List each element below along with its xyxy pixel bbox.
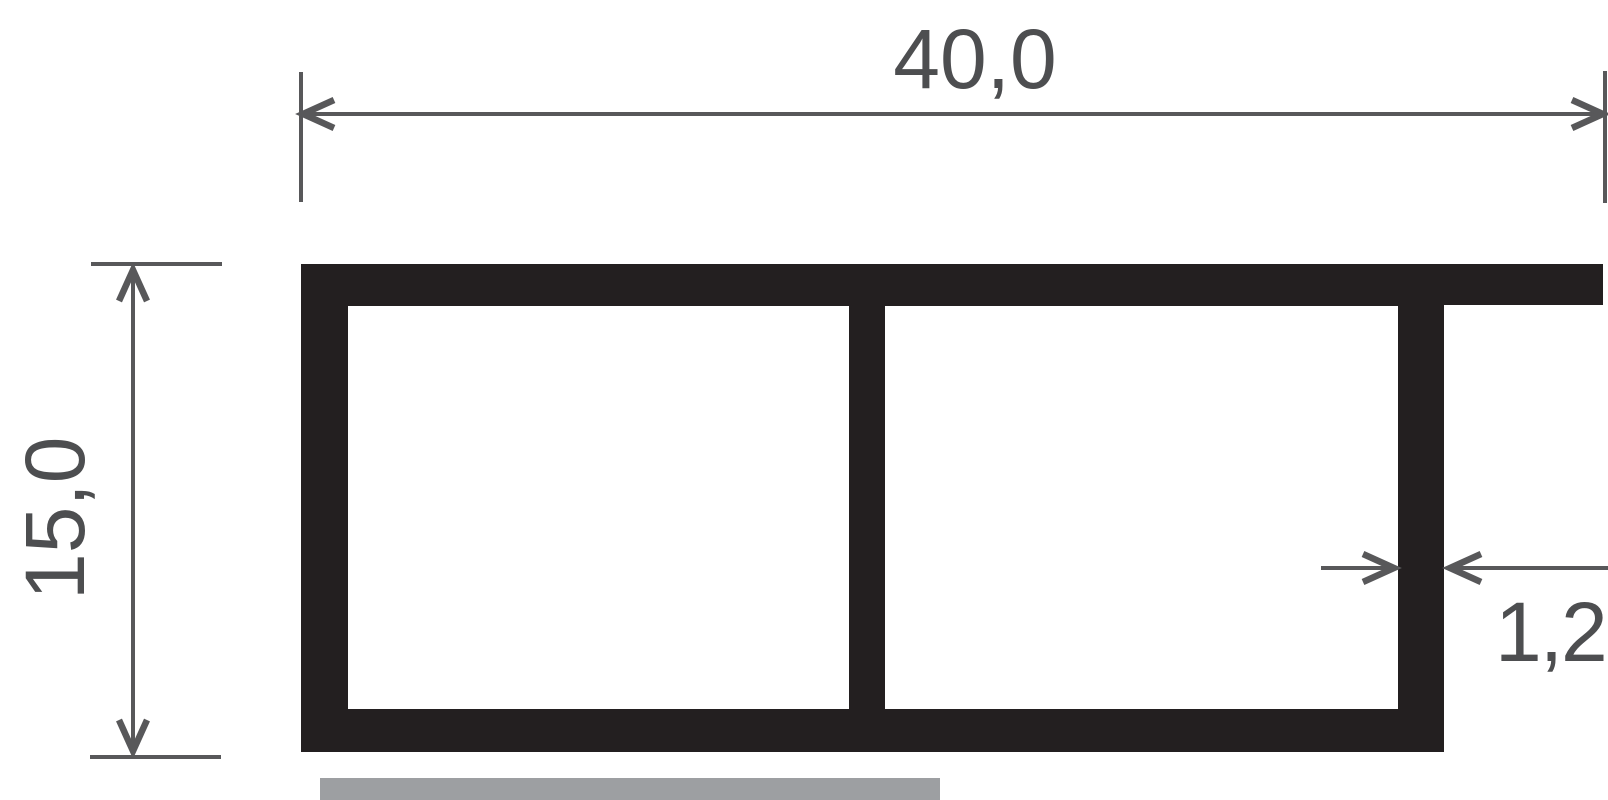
svg-text:1,2: 1,2	[1495, 585, 1606, 679]
svg-text:15,0: 15,0	[8, 437, 102, 601]
svg-text:40,0: 40,0	[893, 12, 1057, 106]
